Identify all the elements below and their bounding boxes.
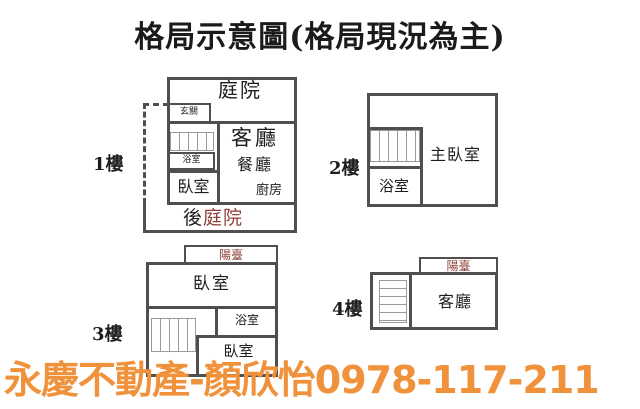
floor4-staircase [379,280,407,323]
floor4-label: 4樓 [332,295,363,321]
floor1-backyard-right-wall [294,203,297,233]
agent-watermark: 永慶不動產-顏欣怡0978-117-211 [4,349,640,404]
floor3-bedroom-lower-top-wall [196,335,278,338]
floor1-courtyard-label: 庭院 [200,80,280,100]
floor2-staircase [370,130,420,162]
floor2-master-bedroom-label: 主臥室 [430,147,481,163]
floor1-bedroom-label: 臥室 [167,179,220,195]
floor1-backyard-left-wall [143,202,146,233]
floor1-dashed-boundary-top [143,103,169,106]
floor1-backyard-bottom-wall [143,230,297,233]
floor3-balcony-label: 陽臺 [184,249,278,261]
page-title: 格局示意圖(格局現況為主) [0,12,640,56]
floor3-bathroom-label: 浴室 [218,314,276,326]
floor2-bathroom-wall [367,166,423,169]
floor3-bedroom-upper-label: 臥室 [146,276,278,293]
floor1-label: 1樓 [93,150,124,176]
floor1-dashed-boundary-left [143,103,146,204]
floor3-label: 3樓 [92,320,123,346]
floor1-kitchen-label: 廚房 [256,184,282,197]
floor3-divider-wall [146,306,278,309]
floor3-staircase [151,318,196,352]
floor1-living-label: 客廳 [231,128,279,149]
floor2-label: 2樓 [329,154,360,180]
floor1-bedroom-wall [167,170,220,173]
floor4-living-label: 客廳 [412,294,498,310]
floor1-dining-label: 餐廳 [237,157,273,173]
floor1-bathroom-label: 浴室 [168,156,215,165]
floor-plan-image: 格局示意圖(格局現況為主) 1樓 庭院 玄關 浴室 臥室 客廳 餐廳 廚房 後庭… [0,0,640,409]
floor1-entrance-label: 玄關 [167,108,211,117]
floor2-bathroom-label: 浴室 [367,179,421,194]
floor4-balcony-label: 陽臺 [419,260,498,272]
floor1-back-courtyard-label: 後庭院 [183,209,243,228]
floor1-staircase [170,132,214,151]
